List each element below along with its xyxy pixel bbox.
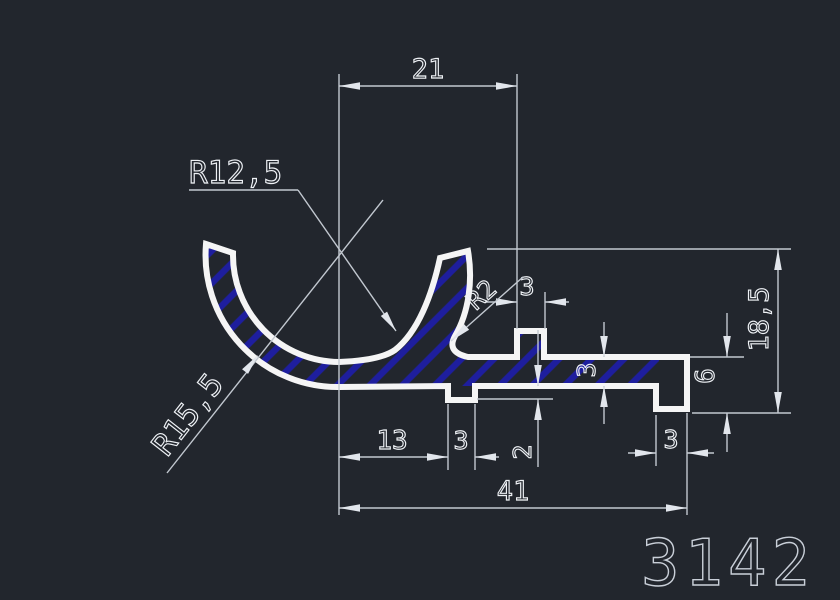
dim-top-width: 21 [339, 54, 517, 90]
cad-drawing-viewport[interactable]: 21 3 R12,5 R15,5 R2 [0, 0, 840, 600]
part-number: 3142 [641, 527, 815, 600]
dim-rib-depth-text: 2 [508, 444, 537, 459]
dim-strip-thickness-text: 3 [572, 362, 601, 377]
rib-pocket [451, 386, 472, 397]
dim-radius-outer-text: R15,5 [145, 367, 231, 463]
dim-foot-width: 3 [628, 413, 714, 515]
dim-radius-inner-text: R12,5 [189, 155, 282, 191]
dim-right-end-height: 6 [690, 313, 744, 452]
dim-right-end-height-text: 6 [691, 368, 721, 384]
dim-tab-width: 3 [485, 272, 569, 306]
dim-overall-width: 41 [339, 476, 687, 512]
cad-drawing-canvas[interactable]: 21 3 R12,5 R15,5 R2 [0, 0, 840, 600]
dim-overall-height-text: 18,5 [744, 286, 775, 351]
dim-foot-width-text: 3 [663, 425, 678, 454]
foot-pocket [659, 360, 684, 406]
dim-left-flat-length: 13 [339, 404, 448, 470]
dim-rib-width-text: 3 [453, 426, 468, 455]
profile-outline [206, 244, 687, 409]
dim-overall-width-text: 41 [497, 476, 530, 507]
dim-rib-width: 3 [453, 404, 499, 470]
profile-section [206, 244, 687, 409]
dim-top-width-text: 21 [412, 54, 445, 85]
dim-tab-width-text: 3 [519, 272, 534, 301]
dim-left-flat-length-text: 13 [376, 426, 407, 456]
